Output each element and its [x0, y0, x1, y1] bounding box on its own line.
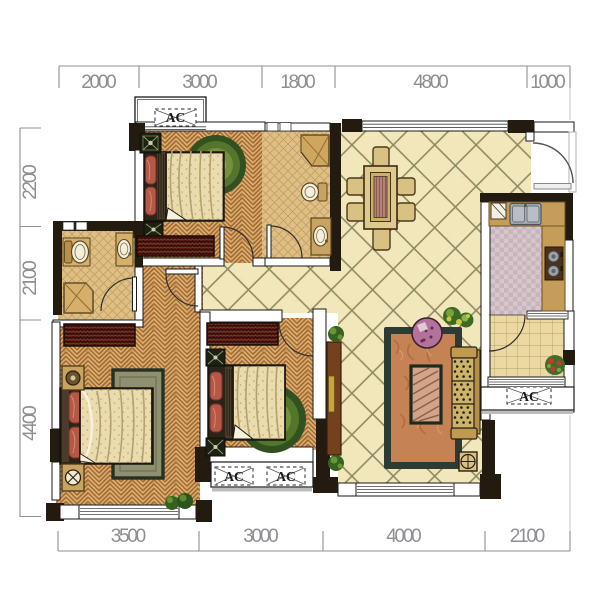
- svg-text:4400: 4400: [20, 405, 41, 441]
- svg-text:2200: 2200: [20, 164, 41, 200]
- svg-text:2100: 2100: [20, 260, 41, 296]
- svg-text:3000: 3000: [182, 72, 218, 93]
- svg-text:4000: 4000: [386, 526, 422, 547]
- svg-text:1000: 1000: [530, 72, 566, 93]
- svg-text:AC: AC: [224, 469, 244, 484]
- svg-text:AC: AC: [519, 389, 539, 404]
- svg-text:AC: AC: [276, 469, 296, 484]
- svg-text:1800: 1800: [280, 72, 316, 93]
- svg-text:4800: 4800: [413, 72, 449, 93]
- svg-text:3500: 3500: [111, 526, 147, 547]
- svg-text:2100: 2100: [510, 526, 546, 547]
- svg-text:2000: 2000: [81, 72, 117, 93]
- svg-text:AC: AC: [166, 110, 186, 125]
- svg-text:3000: 3000: [243, 526, 279, 547]
